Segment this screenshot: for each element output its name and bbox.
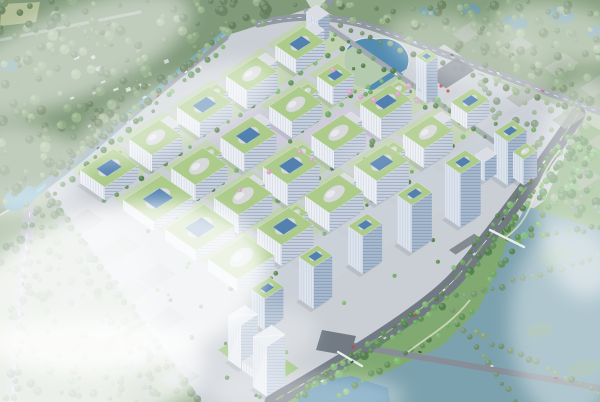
scene-svg <box>0 0 600 402</box>
aerial-masterplan-rendering <box>0 0 600 402</box>
